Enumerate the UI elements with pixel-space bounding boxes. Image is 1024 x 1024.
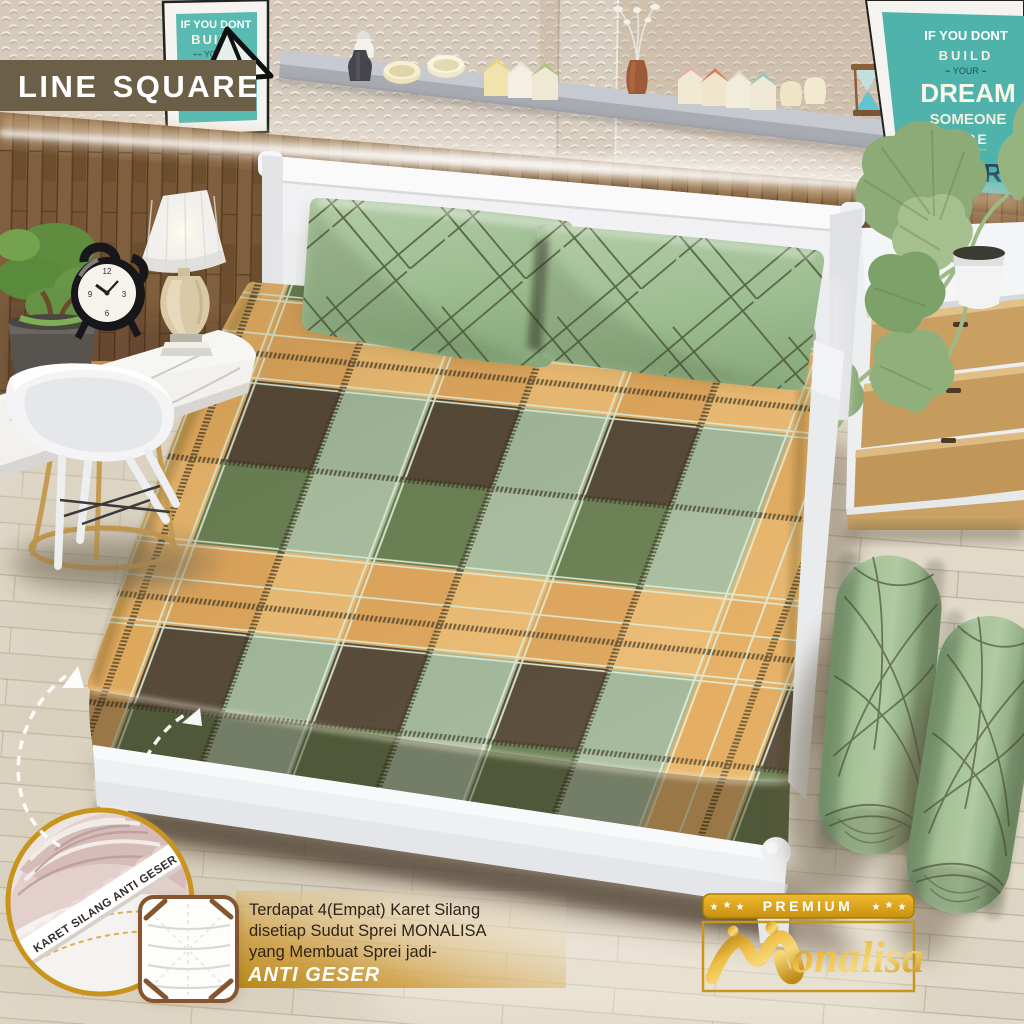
svg-text:3: 3 bbox=[122, 290, 127, 299]
svg-text:LINESQUARE: LINESQUARE bbox=[18, 69, 260, 104]
svg-text:★: ★ bbox=[872, 902, 881, 913]
svg-text:disetiap Sudut Sprei MONALISA: disetiap Sudut Sprei MONALISA bbox=[249, 922, 487, 940]
svg-text:9: 9 bbox=[88, 290, 93, 299]
svg-text:12: 12 bbox=[103, 267, 112, 276]
svg-text:ANTI GESER: ANTI GESER bbox=[247, 964, 380, 986]
svg-text:BUILD: BUILD bbox=[939, 48, 994, 63]
svg-text:yang Membuat Sprei jadi-: yang Membuat Sprei jadi- bbox=[249, 943, 437, 961]
svg-text:★: ★ bbox=[736, 902, 745, 913]
svg-text:★: ★ bbox=[710, 902, 719, 913]
svg-text:DREAM: DREAM bbox=[920, 78, 1015, 108]
svg-text:onalisa: onalisa bbox=[792, 933, 924, 982]
svg-text:IF YOU DONT: IF YOU DONT bbox=[181, 19, 252, 31]
svg-text:PREMIUM: PREMIUM bbox=[763, 898, 854, 914]
svg-text:SOMEONE: SOMEONE bbox=[930, 111, 1007, 128]
svg-text:IF YOU DONT: IF YOU DONT bbox=[924, 28, 1008, 43]
svg-text:Terdapat 4(Empat) Karet Silang: Terdapat 4(Empat) Karet Silang bbox=[249, 901, 480, 919]
svg-text:★: ★ bbox=[723, 900, 732, 911]
svg-text:6: 6 bbox=[105, 309, 110, 318]
svg-text:★: ★ bbox=[898, 902, 907, 913]
svg-text:⌁ YOUR ⌁: ⌁ YOUR ⌁ bbox=[945, 66, 987, 76]
svg-text:★: ★ bbox=[885, 900, 894, 911]
